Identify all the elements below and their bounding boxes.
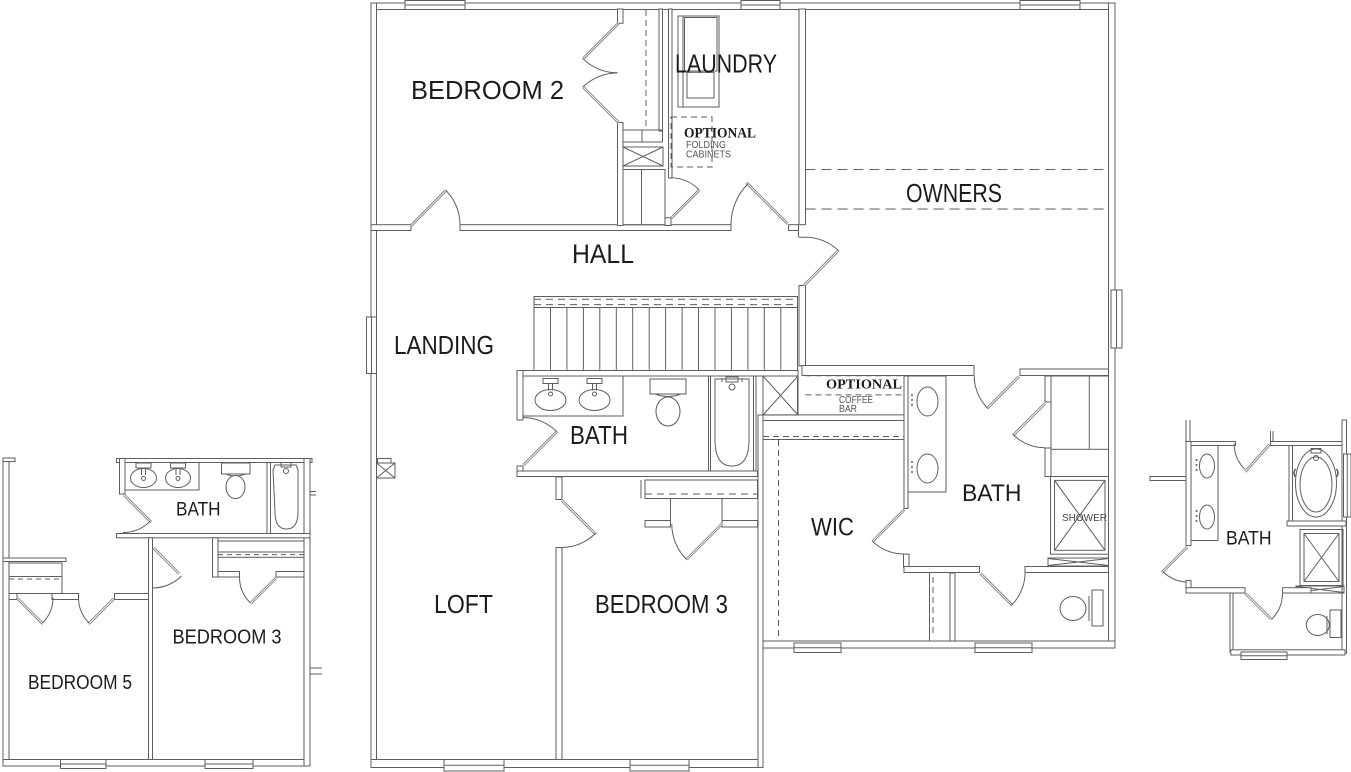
svg-text:WIC: WIC <box>811 514 854 542</box>
svg-text:LAUNDRY: LAUNDRY <box>675 49 777 79</box>
svg-text:CABINETS: CABINETS <box>686 150 731 161</box>
svg-text:HALL: HALL <box>572 239 634 269</box>
svg-text:BATH: BATH <box>1226 529 1272 550</box>
svg-text:LANDING: LANDING <box>394 330 494 360</box>
svg-text:BEDROOM 3: BEDROOM 3 <box>595 589 728 619</box>
svg-text:SHOWER: SHOWER <box>1062 512 1107 524</box>
svg-text:BEDROOM 2: BEDROOM 2 <box>411 75 564 105</box>
svg-text:BATH: BATH <box>962 480 1022 507</box>
svg-text:BEDROOM 3: BEDROOM 3 <box>173 627 282 649</box>
svg-text:BEDROOM 5: BEDROOM 5 <box>28 672 132 694</box>
svg-text:OPTIONAL: OPTIONAL <box>826 378 902 393</box>
svg-text:BATH: BATH <box>176 500 221 521</box>
svg-text:LOFT: LOFT <box>434 589 493 619</box>
svg-text:BATH: BATH <box>570 420 628 450</box>
svg-text:BAR: BAR <box>839 404 857 415</box>
svg-text:OWNERS: OWNERS <box>906 178 1002 208</box>
